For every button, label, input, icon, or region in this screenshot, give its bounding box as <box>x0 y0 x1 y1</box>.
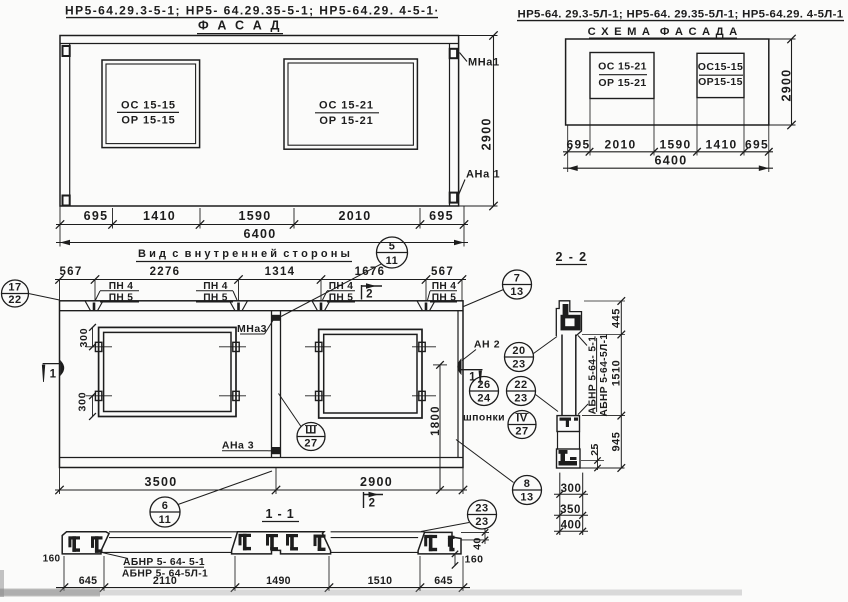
svg-text:АНа 1: АНа 1 <box>466 169 500 181</box>
svg-text:567: 567 <box>431 266 454 278</box>
svg-text:6: 6 <box>162 500 169 512</box>
svg-text:26: 26 <box>477 379 490 391</box>
svg-text:2010: 2010 <box>338 209 371 223</box>
svg-text:НР5-64.29.3-5-1; НР5- 64.29.35: НР5-64.29.3-5-1; НР5- 64.29.35-5-1; НР5-… <box>65 4 440 18</box>
svg-text:7: 7 <box>514 272 521 284</box>
svg-text:2: 2 <box>366 289 374 301</box>
svg-text:160: 160 <box>465 554 484 566</box>
svg-text:АБНР 5- 64- 5-1: АБНР 5- 64- 5-1 <box>123 557 205 568</box>
svg-text:40: 40 <box>471 537 483 550</box>
svg-text:1590: 1590 <box>238 209 271 223</box>
svg-text:23: 23 <box>514 392 527 404</box>
svg-text:1410: 1410 <box>706 138 738 152</box>
svg-text:567: 567 <box>59 266 82 278</box>
svg-text:1510: 1510 <box>610 360 622 386</box>
svg-text:13: 13 <box>510 286 523 298</box>
svg-text:20: 20 <box>512 345 525 357</box>
svg-text:АН 2: АН 2 <box>474 339 500 351</box>
svg-text:АНа 3: АНа 3 <box>222 440 254 452</box>
svg-text:ОР 15-15: ОР 15-15 <box>121 115 175 127</box>
svg-text:МНа1: МНа1 <box>468 57 500 69</box>
svg-text:22: 22 <box>8 294 21 306</box>
svg-text:НР5-64. 29.3-5Л-1; НР5-64. 29.: НР5-64. 29.3-5Л-1; НР5-64. 29.35-5Л-1; Н… <box>518 9 844 21</box>
svg-text:1800: 1800 <box>430 405 442 436</box>
svg-text:300: 300 <box>76 392 88 412</box>
svg-text:23: 23 <box>475 516 488 528</box>
svg-text:2900: 2900 <box>480 117 494 150</box>
svg-text:13: 13 <box>520 491 533 503</box>
svg-text:8: 8 <box>524 478 531 490</box>
svg-text:1510: 1510 <box>368 575 393 587</box>
svg-text:МНа3: МНа3 <box>237 323 267 335</box>
svg-text:5: 5 <box>389 240 396 252</box>
svg-text:2110: 2110 <box>153 575 177 587</box>
svg-text:С Х Е М А Ф А С А Д А: С Х Е М А Ф А С А Д А <box>588 26 739 38</box>
svg-text:23: 23 <box>512 358 525 370</box>
svg-text:695: 695 <box>567 138 591 152</box>
svg-text:27: 27 <box>515 425 528 437</box>
svg-text:В и д с в н у т р е н н е й: В и д с в н у т р е н н е й с т о р о н … <box>138 248 350 260</box>
svg-text:ОС 15-15: ОС 15-15 <box>121 100 176 112</box>
svg-text:1490: 1490 <box>266 575 291 587</box>
svg-text:2276: 2276 <box>150 266 181 278</box>
svg-text:1314: 1314 <box>265 266 296 278</box>
svg-text:2900: 2900 <box>780 68 794 101</box>
svg-text:160: 160 <box>43 554 61 565</box>
svg-text:350: 350 <box>560 504 581 516</box>
svg-text:695: 695 <box>429 209 454 223</box>
svg-text:17: 17 <box>8 281 21 293</box>
svg-text:300: 300 <box>561 483 582 495</box>
svg-text:ОС 15-21: ОС 15-21 <box>319 100 374 112</box>
svg-text:11: 11 <box>159 514 172 526</box>
svg-text:25: 25 <box>589 443 601 455</box>
svg-text:645: 645 <box>434 575 453 587</box>
svg-text:2: 2 <box>369 498 377 510</box>
svg-text:645: 645 <box>79 575 98 587</box>
svg-text:400: 400 <box>561 520 582 532</box>
svg-text:2010: 2010 <box>605 138 637 152</box>
svg-text:695: 695 <box>84 209 109 223</box>
svg-text:IV: IV <box>516 412 528 424</box>
svg-text:22: 22 <box>514 379 527 391</box>
svg-text:27: 27 <box>304 437 317 449</box>
svg-text:445: 445 <box>610 308 622 328</box>
svg-text:24: 24 <box>477 392 491 404</box>
svg-text:23: 23 <box>475 502 488 514</box>
svg-text:300: 300 <box>78 328 90 348</box>
svg-text:2 - 2: 2 - 2 <box>555 250 587 264</box>
svg-text:3500: 3500 <box>144 475 177 489</box>
svg-text:1: 1 <box>50 369 58 381</box>
svg-text:АБНР 5-64-5Л-1: АБНР 5-64-5Л-1 <box>599 334 610 417</box>
svg-text:1410: 1410 <box>143 209 176 223</box>
svg-text:11: 11 <box>386 255 399 267</box>
svg-text:695: 695 <box>745 138 769 152</box>
svg-text:ОР15-15: ОР15-15 <box>698 76 743 88</box>
svg-text:6400: 6400 <box>243 227 276 241</box>
svg-text:1 - 1: 1 - 1 <box>265 507 294 521</box>
svg-text:ОР 15-21: ОР 15-21 <box>319 115 373 127</box>
svg-text:ОС15-15: ОС15-15 <box>698 61 743 73</box>
svg-text:2900: 2900 <box>360 475 393 489</box>
svg-text:1590: 1590 <box>660 138 692 152</box>
svg-text:6400: 6400 <box>654 153 687 167</box>
svg-text:945: 945 <box>610 432 622 452</box>
svg-text:ОР 15-21: ОР 15-21 <box>598 77 646 89</box>
svg-text:шпонки: шпонки <box>463 412 505 424</box>
svg-text:ОС 15-21: ОС 15-21 <box>598 60 647 72</box>
svg-text:Ф А С А Д: Ф А С А Д <box>198 19 282 33</box>
